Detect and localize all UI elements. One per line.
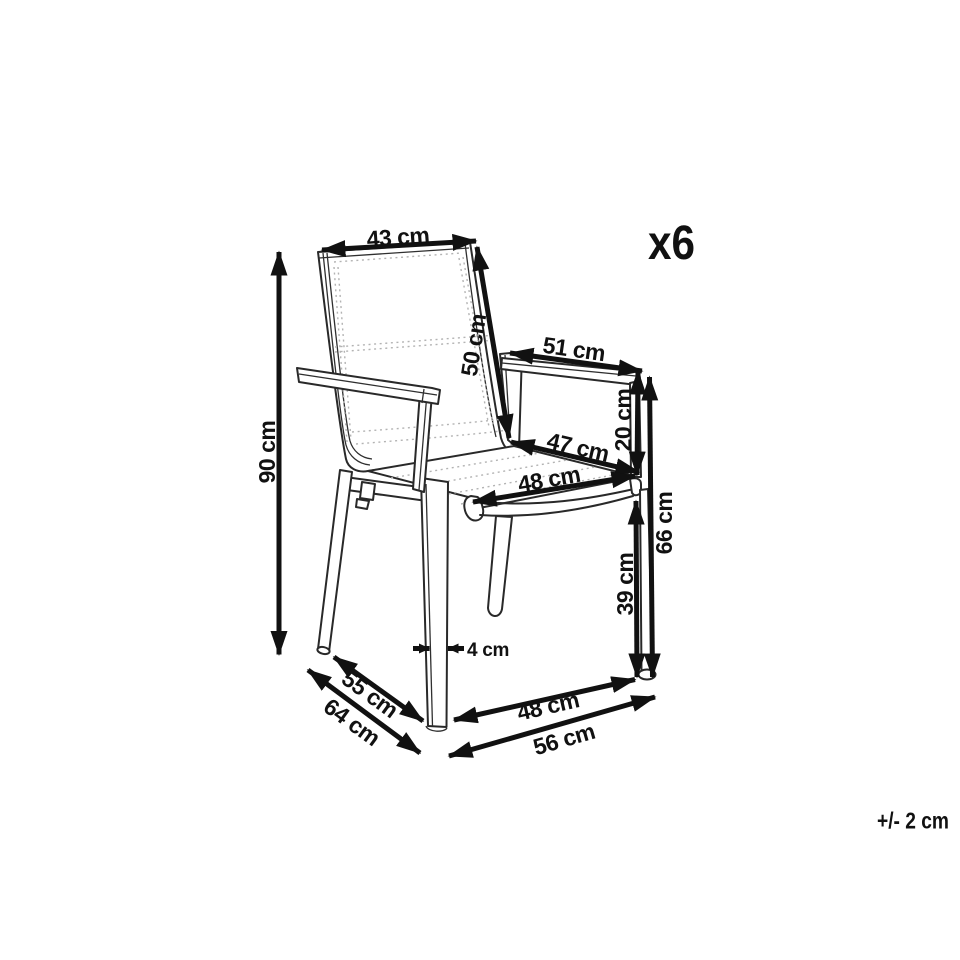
svg-text:x6: x6 [648, 217, 695, 270]
svg-text:90 cm: 90 cm [254, 421, 280, 484]
svg-text:4 cm: 4 cm [467, 640, 509, 661]
svg-text:39 cm: 39 cm [612, 553, 638, 616]
svg-text:43 cm: 43 cm [366, 222, 430, 252]
svg-text:20 cm: 20 cm [610, 389, 636, 452]
svg-text:66 cm: 66 cm [651, 492, 677, 555]
svg-text:+/- 2 cm: +/- 2 cm [877, 808, 949, 834]
